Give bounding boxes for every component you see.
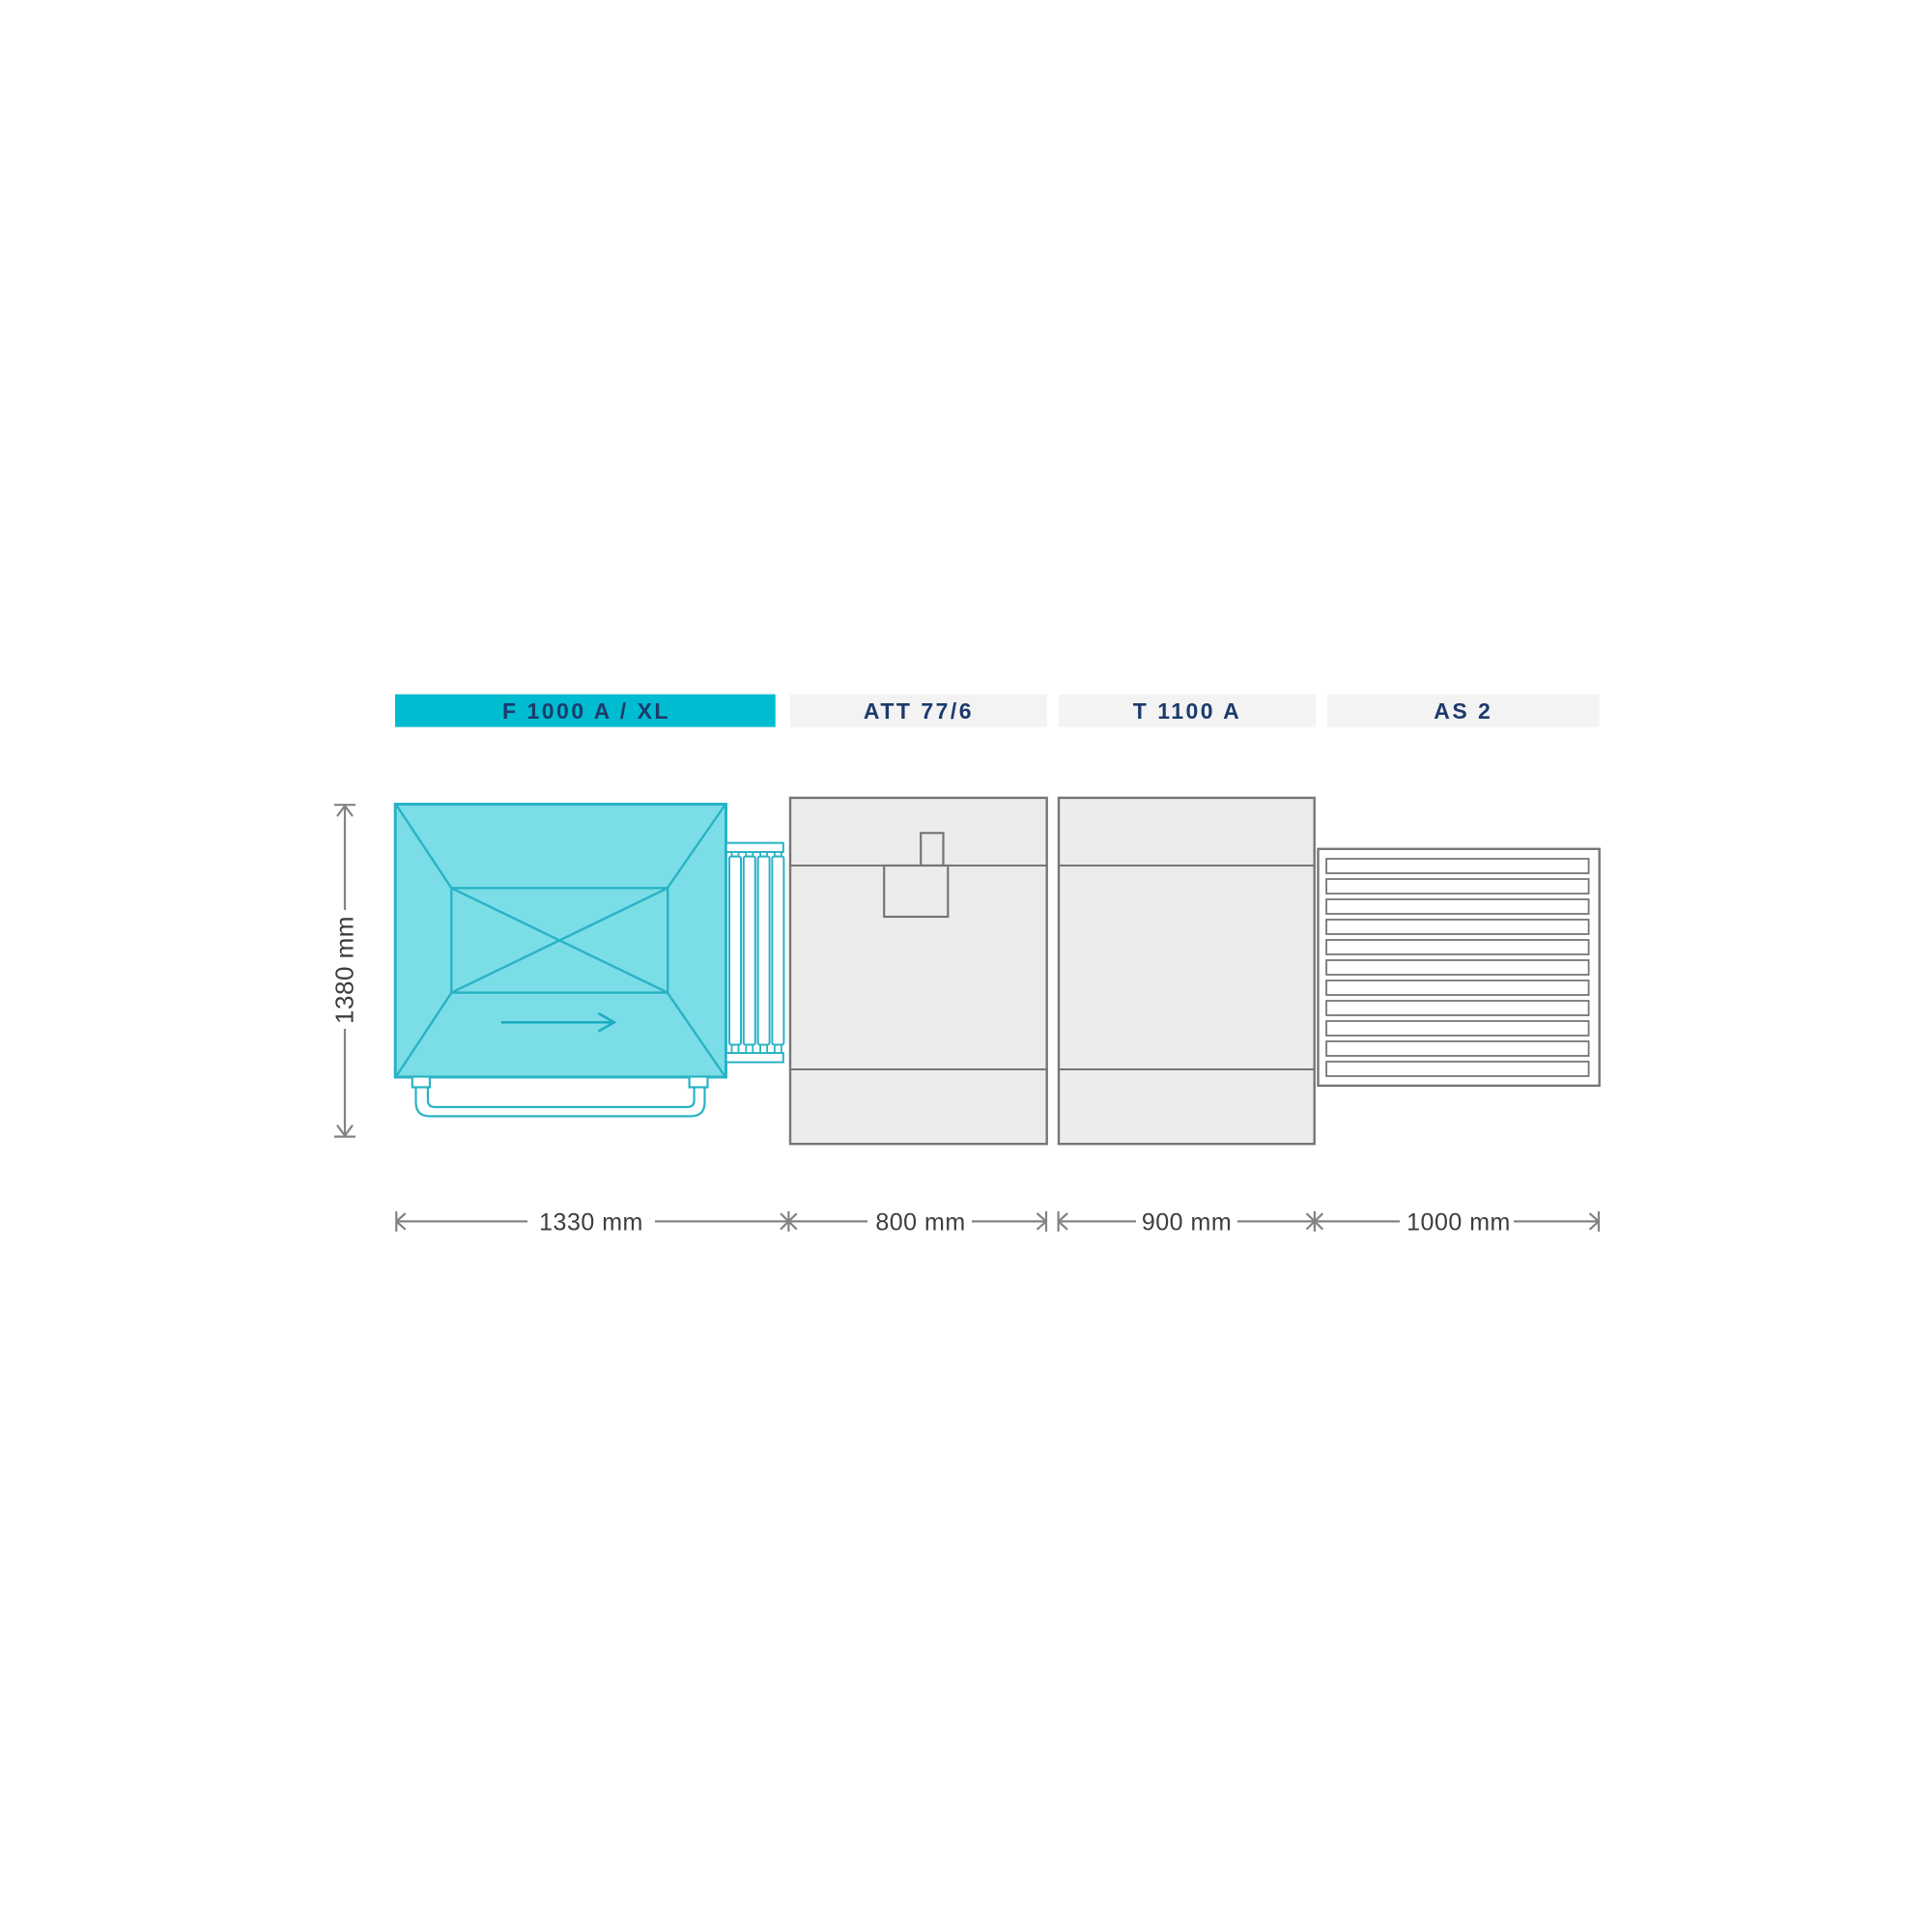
svg-text:AS 2: AS 2 [1434, 698, 1492, 724]
svg-text:1000 mm: 1000 mm [1406, 1209, 1511, 1236]
svg-text:1330 mm: 1330 mm [539, 1209, 643, 1236]
svg-text:T 1100 A: T 1100 A [1133, 698, 1241, 724]
svg-text:ATT 77/6: ATT 77/6 [864, 698, 974, 724]
svg-text:900 mm: 900 mm [1142, 1209, 1232, 1236]
svg-text:F 1000 A / XL: F 1000 A / XL [502, 698, 670, 724]
svg-text:800 mm: 800 mm [875, 1209, 965, 1236]
svg-text:1380 mm: 1380 mm [330, 916, 359, 1024]
